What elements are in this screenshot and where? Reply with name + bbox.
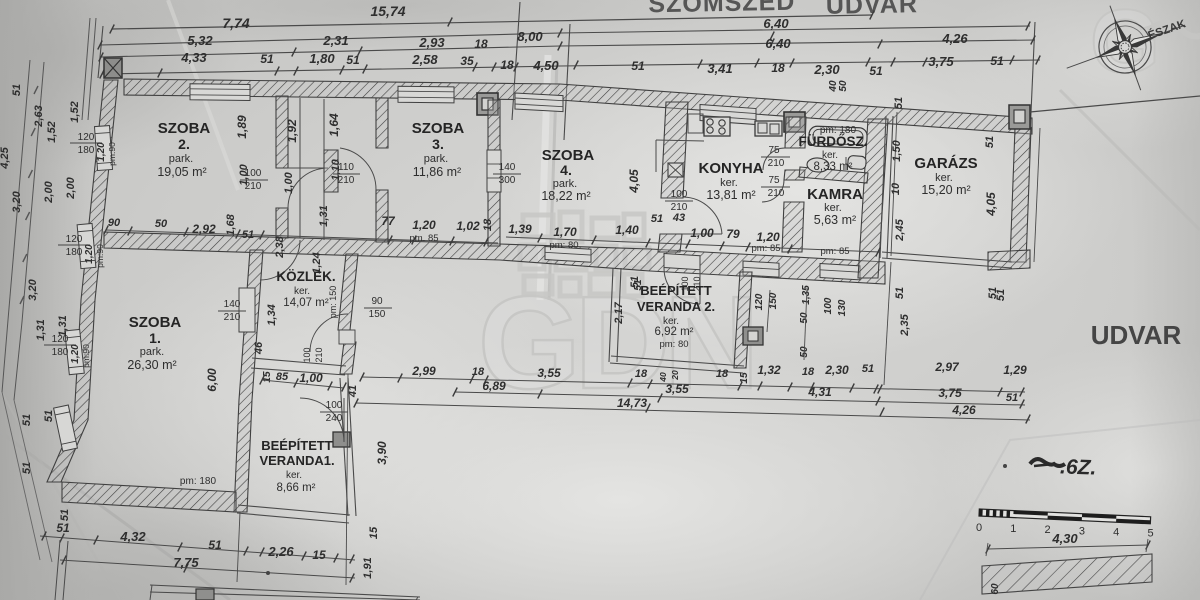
svg-text:75: 75 [768, 145, 780, 156]
svg-text:8,33 m²: 8,33 m² [814, 161, 853, 173]
svg-text:1,20: 1,20 [412, 218, 436, 232]
svg-text:ker.: ker. [822, 150, 838, 161]
svg-text:51: 51 [990, 54, 1004, 68]
svg-text:51: 51 [633, 279, 644, 291]
svg-text:4,26: 4,26 [941, 31, 968, 46]
svg-text:2,00: 2,00 [43, 180, 55, 203]
svg-text:100: 100 [326, 400, 343, 411]
svg-text:51: 51 [984, 136, 996, 148]
svg-text:1,52: 1,52 [46, 121, 58, 142]
svg-text:park.: park. [424, 153, 448, 165]
svg-text:43: 43 [672, 212, 685, 224]
svg-text:7,75: 7,75 [173, 555, 199, 570]
svg-text:1,20: 1,20 [84, 244, 95, 264]
svg-text:5: 5 [1147, 528, 1153, 540]
svg-text:50: 50 [838, 80, 849, 92]
svg-text:4,05: 4,05 [984, 192, 998, 217]
svg-text:210: 210 [768, 158, 785, 169]
svg-text:4,30: 4,30 [1051, 531, 1078, 546]
svg-text:2,30: 2,30 [824, 363, 849, 377]
svg-text:4,31: 4,31 [807, 385, 832, 399]
svg-text:13,81 m²: 13,81 m² [706, 188, 755, 202]
svg-text:2,17: 2,17 [613, 301, 625, 324]
svg-text:pm:90: pm:90 [107, 142, 117, 166]
svg-text:18: 18 [771, 61, 785, 75]
svg-text:1,00: 1,00 [690, 226, 714, 240]
svg-text:18: 18 [635, 368, 648, 380]
svg-text:51: 51 [995, 289, 1007, 301]
svg-text:1,00: 1,00 [283, 171, 295, 193]
svg-text:51: 51 [1006, 392, 1018, 404]
svg-text:VERANDA1.: VERANDA1. [259, 453, 334, 468]
svg-text:18: 18 [500, 58, 514, 72]
svg-text:1,20: 1,20 [756, 230, 780, 244]
svg-text:1,39: 1,39 [508, 222, 532, 236]
svg-text:110: 110 [338, 162, 354, 173]
svg-text:18: 18 [802, 366, 815, 378]
svg-text:3,90: 3,90 [375, 441, 389, 465]
svg-text:2,99: 2,99 [411, 364, 436, 378]
svg-text:15: 15 [312, 548, 326, 562]
svg-text:46: 46 [253, 341, 265, 355]
svg-text:140: 140 [224, 299, 241, 310]
svg-text:180: 180 [52, 347, 69, 358]
svg-text:50: 50 [799, 312, 810, 324]
svg-text:15,74: 15,74 [370, 3, 405, 19]
svg-text:18: 18 [716, 368, 729, 380]
svg-text:2,92: 2,92 [191, 222, 216, 236]
svg-text:4.: 4. [560, 162, 572, 178]
svg-text:51: 51 [43, 410, 55, 422]
svg-text:2.: 2. [178, 136, 190, 152]
svg-text:park.: park. [169, 153, 193, 165]
svg-text:2,30: 2,30 [813, 62, 840, 77]
svg-text:KONYHA: KONYHA [698, 160, 763, 177]
svg-text:75: 75 [768, 175, 780, 186]
svg-text:6,89: 6,89 [482, 379, 506, 393]
svg-text:2,38: 2,38 [274, 235, 286, 258]
svg-text:1: 1 [1010, 523, 1016, 535]
svg-text:1,89: 1,89 [235, 115, 249, 139]
svg-text:120: 120 [52, 334, 69, 345]
svg-text:1,00: 1,00 [299, 371, 323, 385]
svg-text:8,66 m²: 8,66 m² [277, 482, 316, 494]
svg-text:14,73: 14,73 [617, 396, 647, 410]
svg-text:1,64: 1,64 [327, 113, 341, 137]
svg-text:1,20: 1,20 [70, 344, 81, 364]
svg-text:1,91: 1,91 [362, 557, 374, 578]
svg-text:4,50: 4,50 [532, 58, 559, 73]
svg-text:51: 51 [346, 53, 360, 67]
svg-text:UDVAR: UDVAR [1091, 320, 1182, 350]
svg-text:2,63: 2,63 [33, 105, 45, 127]
svg-text:pm: 80: pm: 80 [549, 240, 578, 251]
svg-text:15: 15 [739, 372, 750, 384]
svg-text:8,00: 8,00 [517, 29, 543, 44]
svg-text:park.: park. [140, 346, 164, 358]
svg-text:6,92 m²: 6,92 m² [655, 326, 694, 338]
svg-text:6,00: 6,00 [205, 368, 219, 392]
svg-text:51: 51 [893, 97, 905, 109]
svg-text:18: 18 [472, 366, 485, 378]
svg-text:51: 51 [21, 462, 33, 474]
svg-text:ker.: ker. [286, 470, 302, 481]
svg-text:100: 100 [302, 347, 312, 362]
svg-text:210: 210 [338, 175, 355, 186]
svg-text:.6Z.: .6Z. [1060, 455, 1097, 479]
svg-text:4,05: 4,05 [627, 169, 641, 194]
svg-text:1,20: 1,20 [96, 142, 107, 162]
svg-text:79: 79 [726, 227, 740, 241]
svg-text:SZOBA: SZOBA [129, 314, 182, 331]
svg-text:90: 90 [108, 217, 121, 229]
svg-text:3,41: 3,41 [707, 61, 732, 76]
svg-text:150: 150 [369, 309, 386, 320]
svg-text:26,30 m²: 26,30 m² [127, 358, 176, 372]
svg-text:51: 51 [651, 213, 663, 225]
svg-text:4,32: 4,32 [119, 529, 146, 544]
svg-text:KÖZLEK.: KÖZLEK. [276, 269, 335, 284]
svg-text:SZOBA: SZOBA [158, 120, 211, 137]
svg-text:120: 120 [754, 293, 765, 310]
svg-text:18: 18 [482, 218, 494, 231]
svg-text:14,07 m²: 14,07 m² [283, 297, 329, 309]
svg-text:4,25: 4,25 [0, 146, 11, 169]
svg-text:pm:90: pm:90 [81, 344, 91, 368]
svg-text:3,55: 3,55 [665, 382, 689, 396]
svg-text:35: 35 [460, 54, 474, 68]
svg-text:120: 120 [66, 234, 83, 245]
svg-text:3: 3 [1079, 525, 1085, 537]
svg-text:1,40: 1,40 [615, 223, 639, 237]
svg-text:51: 51 [894, 287, 906, 299]
svg-text:300: 300 [499, 175, 516, 186]
svg-text:1,68: 1,68 [225, 213, 237, 235]
svg-text:60: 60 [990, 583, 1001, 595]
svg-text:18,22 m²: 18,22 m² [541, 189, 590, 203]
svg-text:5,32: 5,32 [187, 33, 213, 48]
svg-text:210: 210 [692, 276, 702, 291]
svg-text:100: 100 [671, 189, 688, 200]
svg-text:51: 51 [869, 64, 883, 78]
svg-text:18: 18 [474, 37, 488, 51]
svg-text:1,32: 1,32 [757, 363, 781, 377]
svg-text:3,20: 3,20 [11, 190, 23, 212]
svg-text:VERANDA 2.: VERANDA 2. [637, 299, 715, 314]
svg-text:130: 130 [837, 299, 848, 316]
svg-text:1,92: 1,92 [285, 119, 299, 143]
svg-text:1,02: 1,02 [456, 219, 480, 233]
svg-text:5,63 m²: 5,63 m² [814, 213, 856, 227]
svg-text:50: 50 [155, 218, 168, 230]
svg-text:2,26: 2,26 [267, 544, 294, 559]
svg-text:3,20: 3,20 [27, 278, 39, 300]
svg-text:51: 51 [631, 59, 645, 73]
svg-text:41: 41 [347, 385, 359, 398]
svg-text:1,80: 1,80 [309, 51, 335, 66]
svg-text:2,93: 2,93 [418, 35, 445, 50]
svg-text:2: 2 [1045, 524, 1051, 536]
svg-text:ker.: ker. [294, 286, 310, 297]
svg-text:BEÉPÍTETT: BEÉPÍTETT [261, 438, 333, 453]
svg-text:20: 20 [670, 370, 680, 381]
svg-text:4,26: 4,26 [951, 403, 976, 417]
svg-text:51: 51 [242, 229, 254, 241]
svg-text:51: 51 [862, 363, 874, 375]
svg-text:100: 100 [823, 297, 834, 314]
svg-text:FÜRDŐSZ.: FÜRDŐSZ. [799, 134, 868, 149]
svg-text:100: 100 [245, 168, 262, 179]
svg-text:1,31: 1,31 [318, 205, 330, 226]
svg-text:51: 51 [56, 521, 70, 535]
svg-text:2,31: 2,31 [322, 33, 348, 48]
svg-text:pm: 180: pm: 180 [180, 476, 217, 487]
svg-text:240: 240 [326, 413, 343, 424]
svg-text:51: 51 [208, 538, 222, 552]
svg-text:210: 210 [224, 312, 241, 323]
svg-text:GARÁZS: GARÁZS [914, 155, 977, 172]
svg-text:2,58: 2,58 [411, 52, 438, 67]
svg-text:140: 140 [499, 162, 516, 173]
svg-text:pm: 150: pm: 150 [328, 286, 338, 319]
svg-text:1,50: 1,50 [891, 139, 903, 161]
svg-text:77: 77 [381, 214, 396, 228]
svg-text:pm: 180: pm: 180 [820, 125, 857, 136]
svg-text:180: 180 [78, 145, 95, 156]
svg-text:10: 10 [890, 182, 902, 195]
svg-text:180: 180 [66, 247, 83, 258]
svg-text:pm: 80: pm: 80 [659, 339, 688, 350]
svg-text:KAMRA: KAMRA [807, 186, 863, 203]
svg-text:15,20 m²: 15,20 m² [921, 183, 970, 197]
svg-text:19,05 m²: 19,05 m² [157, 165, 206, 179]
svg-text:4: 4 [1113, 526, 1119, 538]
svg-text:7,74: 7,74 [222, 15, 249, 31]
svg-text:51: 51 [260, 52, 274, 66]
svg-text:1.: 1. [149, 330, 161, 346]
svg-text:120: 120 [78, 132, 95, 143]
svg-text:6,40: 6,40 [765, 36, 791, 51]
svg-text:51: 51 [21, 414, 33, 426]
svg-text:11,86 m²: 11,86 m² [413, 165, 461, 179]
svg-text:1,29: 1,29 [1003, 363, 1027, 377]
svg-text:210: 210 [245, 181, 262, 192]
svg-text:2,97: 2,97 [934, 360, 960, 374]
svg-text:2,00: 2,00 [65, 176, 77, 199]
svg-text:3,75: 3,75 [928, 54, 954, 69]
svg-text:3,55: 3,55 [537, 366, 561, 380]
svg-text:51: 51 [11, 84, 23, 96]
svg-text:2,35: 2,35 [899, 313, 911, 336]
svg-text:3.: 3. [432, 136, 444, 152]
svg-text:1,70: 1,70 [553, 225, 577, 239]
svg-text:100: 100 [680, 276, 690, 291]
svg-text:1,52: 1,52 [69, 101, 81, 122]
svg-text:1,31: 1,31 [35, 319, 47, 340]
svg-text:3,75: 3,75 [938, 386, 962, 400]
svg-text:51: 51 [59, 509, 71, 521]
svg-text:210: 210 [768, 188, 785, 199]
svg-text:pm: 85: pm: 85 [820, 246, 849, 257]
svg-text:0: 0 [976, 522, 982, 534]
svg-text:2,45: 2,45 [894, 218, 906, 241]
svg-text:pm: 85: pm: 85 [751, 243, 780, 254]
svg-text:6,40: 6,40 [763, 16, 789, 31]
svg-text:90: 90 [371, 296, 383, 307]
svg-text:SZOBA: SZOBA [412, 120, 465, 137]
svg-text:pm. 85: pm. 85 [409, 233, 438, 244]
svg-text:15: 15 [368, 526, 380, 539]
svg-text:210: 210 [314, 347, 324, 362]
svg-text:4,33: 4,33 [180, 50, 207, 65]
svg-text:1,34: 1,34 [266, 304, 278, 325]
